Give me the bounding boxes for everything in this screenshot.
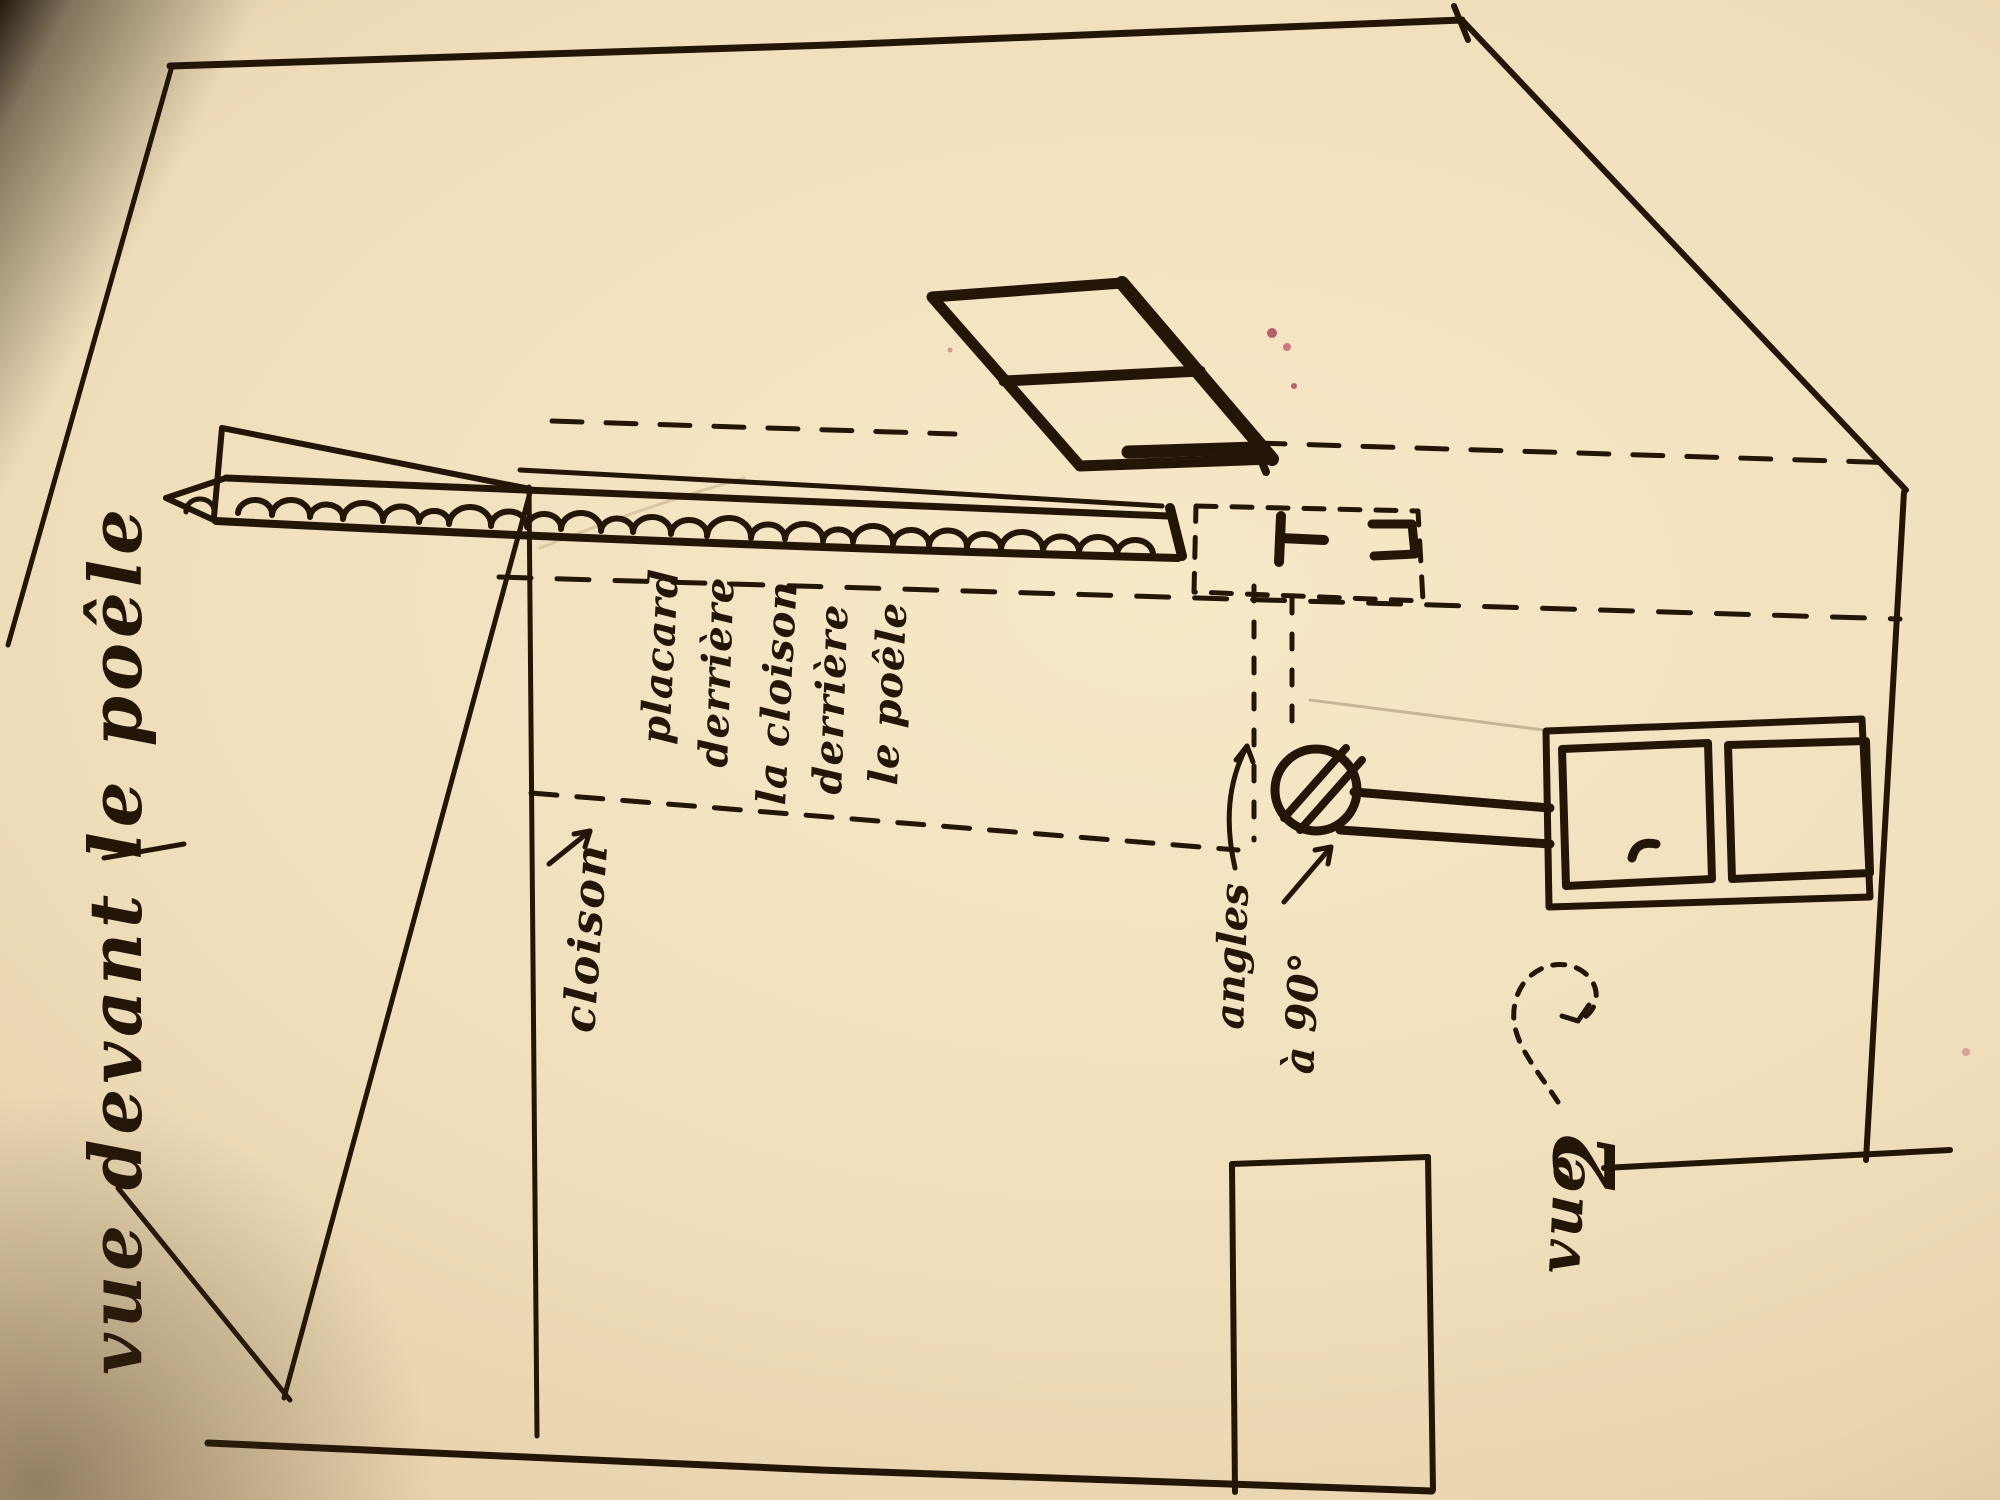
closet-note-line-4: derrière xyxy=(808,603,855,795)
elbow-arrow xyxy=(1284,847,1331,902)
view-title-label: vue devant le poêle xyxy=(80,504,152,1375)
closet-note-line-1: placard xyxy=(636,568,685,745)
vue2-dashed-arrow xyxy=(1514,964,1597,1102)
pipe-top-line xyxy=(1354,792,1550,808)
duct-solid-stub xyxy=(1128,448,1256,452)
door-left xyxy=(1232,1164,1235,1492)
sketch-photo: vue devant le poêle cloison placard derr… xyxy=(0,0,2000,1500)
stove xyxy=(1546,719,1870,907)
skylight-crossbar xyxy=(1004,371,1200,381)
wall-band-insulation xyxy=(166,428,1182,558)
skylight xyxy=(932,283,1272,466)
duct-bracket-mark xyxy=(1372,524,1415,556)
angle-note-line-2: à 90° xyxy=(1278,952,1326,1075)
ceiling-top-edge xyxy=(170,20,1462,66)
stove-pipe-elbow xyxy=(1254,586,1550,844)
stove-handle-mark xyxy=(1632,843,1656,858)
stove-door-left xyxy=(1562,743,1712,886)
floor-front-edge xyxy=(208,1443,1432,1491)
vue2-sight-line xyxy=(1604,1150,1950,1168)
closet-note-line-3: la cloison xyxy=(752,579,804,806)
strip-end-cap xyxy=(1170,508,1182,556)
beam-end-line xyxy=(214,428,222,517)
door-right xyxy=(1428,1157,1433,1490)
door-top xyxy=(1232,1157,1428,1164)
stove-door-right xyxy=(1728,741,1870,879)
paper-stains xyxy=(948,328,1971,1056)
duct-curved-arrow xyxy=(1229,746,1253,868)
view2-label-number: 2 xyxy=(1544,1132,1628,1190)
closet-note-line-5: le poêle xyxy=(864,601,914,786)
pipe-bottom-line xyxy=(1340,830,1550,844)
floor-left-edge xyxy=(284,489,531,1398)
angle-note-line-1: angles xyxy=(1210,883,1255,1030)
strip-bottom-line xyxy=(216,521,1178,558)
sketch-drawing xyxy=(0,0,2000,1500)
sketch-artwork: vue devant le poêle cloison placard derr… xyxy=(0,0,2000,1500)
partition-line xyxy=(529,487,537,1436)
partition-label: cloison xyxy=(558,842,615,1034)
closet-note-line-2: derrière xyxy=(694,576,741,768)
ceiling-right-edge xyxy=(1462,20,1906,490)
